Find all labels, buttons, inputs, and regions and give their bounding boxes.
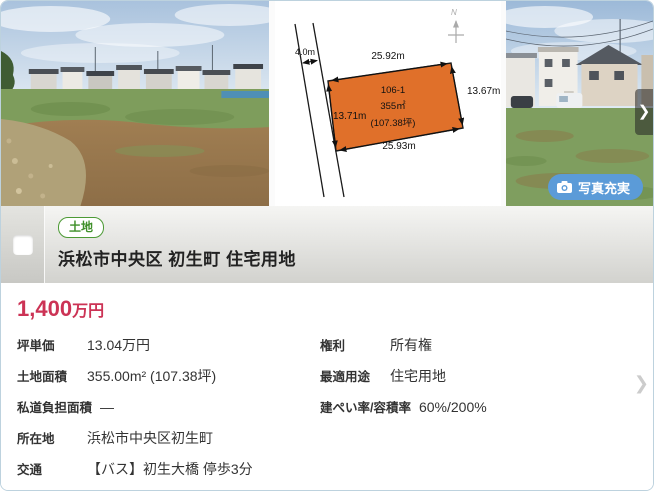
detail-label: 土地面積 [17,367,79,387]
property-title[interactable]: 浜松市中央区 初生町 住宅用地 [58,245,296,270]
header-main: 土地 浜松市中央区 初生町 住宅用地 [45,206,296,283]
detail-row: 私道負担面積 ― [17,397,320,418]
camera-icon [557,181,572,193]
detail-label: 坪単価 [17,336,79,356]
detail-row: 坪単価 13.04万円 [17,335,320,356]
detail-value: 浜松市中央区初生町 [87,428,213,448]
price-unit: 万円 [72,303,104,320]
lot-area-label: 355㎡ [380,101,406,112]
land-photo-illustration [1,1,269,206]
next-photo-button[interactable]: ❯ [635,89,653,135]
detail-value: 住宅用地 [390,366,446,386]
checkbox-column [1,206,45,283]
lot-diagram-illustration: N 4.0m 25.92m 13.67m 13.71m 25.93m [275,1,501,206]
photo-rich-badge: 写真充実 [548,174,643,200]
detail-row: 権利 所有権 [320,335,623,356]
detail-value: 所有権 [390,335,432,355]
detail-label: 権利 [320,336,382,356]
photo-strip: N 4.0m 25.92m 13.67m 13.71m 25.93m [1,1,653,206]
detail-row: 土地面積 355.00m² (107.38坪) [17,366,320,387]
detail-label: 建ぺい率/容積率 [320,398,411,418]
dim-right-label: 13.67m [467,86,500,97]
detail-row: 最適用途 住宅用地 [320,366,623,387]
detail-label: 所在地 [17,429,79,449]
lot-diagram[interactable]: N 4.0m 25.92m 13.67m 13.71m 25.93m [275,1,501,206]
photo-rich-badge-label: 写真充実 [578,178,630,197]
detail-column-left: 坪単価 13.04万円 土地面積 355.00m² (107.38坪) 私道負担… [17,335,320,490]
detail-row: 所在地 浜松市中央区初生町 [17,428,320,449]
detail-value: 60%/200% [419,397,487,417]
north-label: N [451,8,457,17]
listing-header: 土地 浜松市中央区 初生町 住宅用地 [1,206,653,283]
detail-label: 私道負担面積 [17,398,92,418]
road-width-label: 4.0m [295,47,315,57]
detail-grid: 坪単価 13.04万円 土地面積 355.00m² (107.38坪) 私道負担… [17,335,623,490]
dim-bottom-label: 25.93m [382,141,415,152]
detail-label: 交通 [17,460,79,480]
chevron-right-icon: ❯ [634,373,649,394]
detail-value: 13.04万円 [87,335,150,355]
detail-column-right: 権利 所有権 最適用途 住宅用地 建ぺい率/容積率 60%/200% [320,335,623,490]
photo-land-1[interactable] [1,1,269,206]
price-amount: 1,400 [17,296,72,321]
detail-label: 最適用途 [320,367,382,387]
dim-top-label: 25.92m [371,51,404,62]
detail-value: 355.00m² (107.38坪) [87,366,216,386]
lot-number-label: 106-1 [381,85,405,96]
detail-value: ― [100,397,114,417]
detail-row: 交通 【バス】初生大橋 停歩3分 [17,459,320,480]
property-type-badge: 土地 [58,217,104,238]
detail-value: 【バス】初生大橋 停歩3分 [87,459,253,479]
dim-left-label: 13.71m [333,111,366,122]
details-section: 1,400万円 坪単価 13.04万円 土地面積 355.00m² (107.3… [1,283,653,490]
detail-row: 建ぺい率/容積率 60%/200% [320,397,623,418]
lot-area-tsubo-label: (107.38坪) [371,117,416,129]
price: 1,400万円 [17,297,623,321]
select-checkbox[interactable] [13,235,33,255]
property-card[interactable]: N 4.0m 25.92m 13.67m 13.71m 25.93m [0,0,654,491]
